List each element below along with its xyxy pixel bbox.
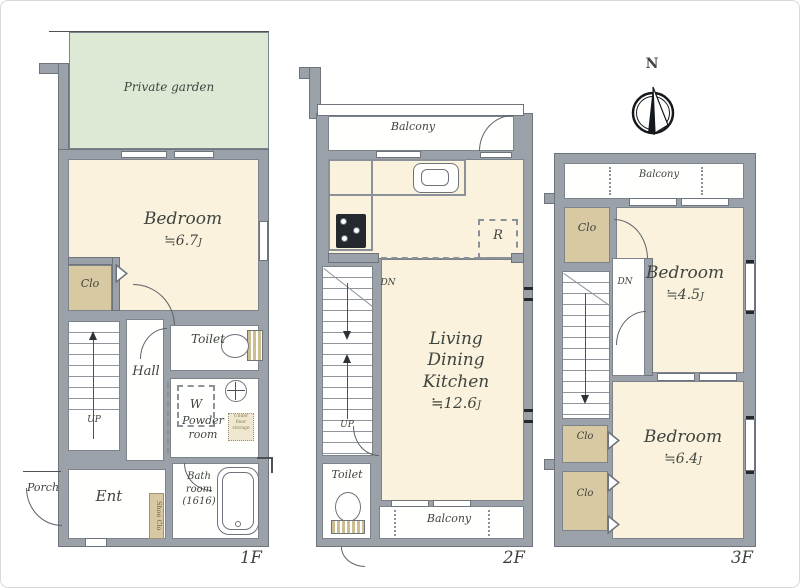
up-label: UP [340,420,354,430]
window [681,198,729,206]
folding-door-icon [607,515,620,534]
room-name: Bedroom [646,263,724,283]
closet-3f-bottom [562,471,608,531]
window [629,198,677,206]
sliding-door [167,382,169,454]
closet-label: Clo [577,488,594,500]
floor-label-2f: 2F [503,549,525,568]
closet-label: Clo [81,278,100,291]
stairs-1f [68,321,120,451]
window [745,263,755,311]
dn-label: DN [380,278,395,288]
window-tick [746,311,754,314]
closet-label: Clo [578,222,597,235]
room-name: Bedroom [144,209,222,229]
balcony-label: Balcony [427,513,471,526]
toilet-bowl [221,334,249,358]
folding-door-icon [607,473,620,492]
window [174,151,214,158]
stair-up-arrow [343,354,351,363]
door-opening [480,152,512,158]
bedroom-large-label: Bedroom ≒6.4J [631,427,735,469]
toilet-tank [247,330,263,361]
window-tick [746,260,754,263]
wall [511,253,524,263]
toilet-label: Toilet [331,469,362,482]
dn-label: DN [617,277,632,287]
window-tick [524,287,533,290]
room-size: ≒4.5J [666,287,704,303]
door-arc [341,547,365,567]
thin-wall [317,104,524,116]
folding-door-icon [115,264,128,283]
room-name: Bedroom [644,427,722,447]
powder-room-label: Powder room [176,414,230,442]
window [433,500,471,507]
window-tick [524,298,533,301]
room-name: Living [429,329,483,349]
entrance-label: Ent [96,488,123,505]
hall-label: Hall [132,365,159,380]
washbasin-cross [235,382,236,400]
porch-line [23,471,61,472]
stove-burner [340,218,347,225]
balcony-label: Balcony [639,169,679,181]
window [259,221,268,261]
stair-down-arrow [581,395,589,404]
toilet-bowl [335,492,361,522]
window-tick [524,420,533,423]
bathtub-drain [235,521,241,527]
room-size: ≒12.6J [431,394,481,412]
wall [58,63,69,150]
window [657,373,695,381]
stair-down-arrow [343,331,351,340]
floor-label-1f: 1F [240,549,262,568]
ldk-label: Living Dining Kitchen ≒12.6J [406,329,506,413]
underfloor-storage: Under floor storage [228,413,254,441]
balcony-railing-mark [394,510,396,536]
closet-3f-top [564,207,610,263]
stair-direction-line [585,293,586,395]
shoe-closet: Shoe Clo [149,493,164,539]
window [745,419,755,471]
floor-plan: Under floor storage Shoe Clo Private gar… [0,0,800,588]
porch-label: Porch [27,482,59,495]
faucet-icon [271,457,273,473]
balcony-railing-mark [488,510,490,536]
fridge-label: R [493,229,503,244]
stair-up-arrow [89,331,97,340]
window [121,151,167,158]
up-label: UP [87,415,101,425]
window-tick [746,471,754,474]
washbasin-cross [227,390,245,391]
kitchen-living-boundary [381,257,511,259]
stair-direction-line [347,363,348,419]
kitchen-sink-inner [421,169,449,186]
window [391,500,429,507]
window [376,151,421,158]
stove-burner [341,235,348,242]
washer-label: W [190,398,202,412]
balcony-railing-mark [701,167,703,195]
garden-label: Private garden [124,81,214,95]
window-tick [524,409,533,412]
floor-label-3f: 3F [731,549,753,568]
balcony-railing-mark [609,167,611,195]
bedroom-1f-label: Bedroom ≒6.7J [133,209,233,251]
room-name: Dining [427,350,484,370]
closet-label: Clo [577,431,594,443]
room-size: ≒6.7J [164,233,202,249]
washbasin [225,380,247,402]
toilet-tank [331,520,365,534]
bedroom-small-label: Bedroom ≒4.5J [633,263,737,305]
window [699,373,737,381]
compass-icon [630,79,676,143]
entrance-step [85,538,107,547]
balcony-label: Balcony [391,121,435,134]
room-size: ≒6.4J [664,451,702,467]
bath-room-label: Bath room (1616) [175,471,223,509]
toilet-label: Toilet [191,333,225,347]
room-name: Kitchen [423,372,489,392]
wall [68,257,118,265]
stair-direction-line [347,283,348,331]
compass-north-label: N [646,56,659,72]
wall [328,253,379,263]
window-tick [746,416,754,419]
stove-burner [353,227,360,234]
folding-door-icon [607,431,620,450]
